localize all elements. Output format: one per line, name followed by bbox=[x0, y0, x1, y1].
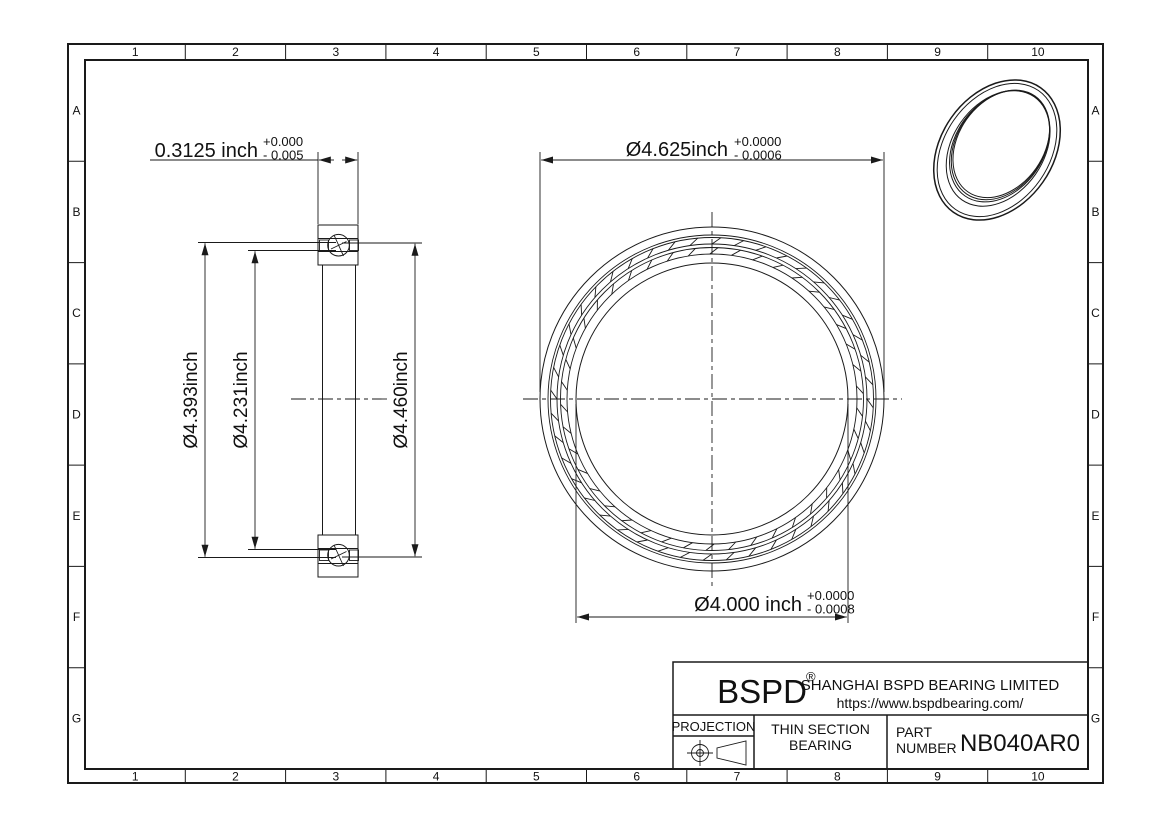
dim-4625-tol-minus: - 0.0006 bbox=[734, 148, 782, 163]
grid-row-label: B bbox=[72, 205, 80, 219]
dim-4460-value: Ø4.460inch bbox=[391, 351, 412, 448]
grid-row-label: E bbox=[1091, 509, 1099, 523]
grid-col-label: 7 bbox=[734, 45, 741, 59]
dim-4625-value: Ø4.625inch bbox=[626, 139, 728, 161]
grid-row-label: C bbox=[72, 306, 81, 320]
grid-col-label: 9 bbox=[934, 770, 941, 784]
frame-ticks-bottom bbox=[185, 769, 987, 783]
grid-col-label: 5 bbox=[533, 770, 540, 784]
front-view bbox=[523, 212, 902, 588]
grid-col-label: 2 bbox=[232, 45, 239, 59]
grid-col-label: 7 bbox=[734, 770, 741, 784]
grid-col-label: 9 bbox=[934, 45, 941, 59]
grid-col-label: 4 bbox=[433, 45, 440, 59]
company-website: https://www.bspdbearing.com/ bbox=[837, 695, 1024, 711]
iso-ring-outer-chamfer bbox=[912, 60, 1081, 239]
grid-col-label: 2 bbox=[232, 770, 239, 784]
iso-view-bearing-ring bbox=[908, 56, 1087, 245]
product-name-line1: THIN SECTION bbox=[771, 721, 870, 737]
dim-4393-extension-lines bbox=[198, 243, 336, 558]
grid-row-label: B bbox=[1091, 205, 1099, 219]
part-number-label-line1: PART bbox=[896, 724, 932, 740]
engineering-drawing-page: 1 2 3 4 5 6 7 8 9 10 1 2 3 4 5 6 7 8 9 1… bbox=[0, 0, 1170, 827]
grid-row-label: F bbox=[1092, 610, 1099, 624]
dim-width-tol-minus: - 0.005 bbox=[263, 148, 303, 163]
grid-col-label: 1 bbox=[132, 770, 139, 784]
iso-ring-outer-edge bbox=[908, 56, 1087, 245]
section-view bbox=[291, 225, 387, 577]
seal-top-left bbox=[320, 240, 329, 251]
grid-col-label: 1 bbox=[132, 45, 139, 59]
dim-4000-value: Ø4.000 inch bbox=[694, 594, 802, 616]
dim-width-extension-lines bbox=[318, 152, 358, 224]
brand-logo-text: BSPD bbox=[717, 673, 807, 710]
iso-ring-bore-edge-1 bbox=[929, 72, 1070, 222]
grid-col-label: 10 bbox=[1031, 770, 1045, 784]
grid-row-label: A bbox=[72, 104, 80, 118]
projection-crosshair bbox=[687, 740, 713, 766]
dim-4393-value: Ø4.393inch bbox=[181, 351, 202, 448]
frame-ticks-top bbox=[185, 44, 987, 60]
dim-4231-value: Ø4.231inch bbox=[231, 351, 252, 448]
grid-row-label: E bbox=[72, 509, 80, 523]
grid-col-label: 3 bbox=[332, 45, 339, 59]
grid-col-label: 4 bbox=[433, 770, 440, 784]
company-name: SHANGHAI BSPD BEARING LIMITED bbox=[801, 677, 1060, 694]
projection-label: PROJECTION bbox=[672, 719, 756, 734]
projection-symbol-icon bbox=[687, 740, 746, 766]
inner-ring-section-top bbox=[318, 252, 358, 266]
grid-col-label: 8 bbox=[834, 45, 841, 59]
inner-ring-section-bottom bbox=[318, 535, 358, 549]
part-number-label-line2: NUMBER bbox=[896, 740, 957, 756]
engineering-drawing: 1 2 3 4 5 6 7 8 9 10 1 2 3 4 5 6 7 8 9 1… bbox=[0, 0, 1170, 827]
grid-row-label: C bbox=[1091, 306, 1100, 320]
grid-row-label: G bbox=[1091, 711, 1100, 725]
dim-left-inner-4231: Ø4.231inch bbox=[231, 251, 336, 550]
dim-width-value: 0.3125 inch bbox=[155, 140, 258, 162]
grid-col-label: 8 bbox=[834, 770, 841, 784]
title-block: BSPD ® SHANGHAI BSPD BEARING LIMITED htt… bbox=[672, 662, 1088, 769]
dim-right-4460: Ø4.460inch bbox=[342, 243, 422, 557]
seal-bottom-left bbox=[320, 550, 329, 561]
grid-col-label: 10 bbox=[1031, 45, 1045, 59]
grid-col-label: 5 bbox=[533, 45, 540, 59]
projection-cone bbox=[717, 741, 746, 765]
grid-row-label: D bbox=[1091, 408, 1100, 422]
grid-row-label: A bbox=[1091, 104, 1099, 118]
grid-row-label: D bbox=[72, 408, 81, 422]
dim-4000-tol-minus: - 0.0008 bbox=[807, 602, 855, 617]
outer-ring-section-top bbox=[318, 225, 358, 239]
grid-col-label: 6 bbox=[633, 45, 640, 59]
dim-width: 0.3125 inch +0.000 - 0.005 bbox=[150, 134, 358, 224]
dim-bore-diameter: Ø4.000 inch +0.0000 - 0.0008 bbox=[576, 404, 855, 623]
product-name-line2: BEARING bbox=[789, 737, 852, 753]
grid-row-label: G bbox=[72, 711, 81, 725]
seal-bottom-right bbox=[350, 550, 359, 561]
part-number-value: NB040AR0 bbox=[960, 730, 1080, 757]
bore-surface bbox=[323, 265, 356, 535]
grid-col-label: 3 bbox=[332, 770, 339, 784]
section-outline-top bbox=[318, 225, 358, 265]
seal-top-right bbox=[350, 240, 359, 251]
dim-left-outer-4393: Ø4.393inch bbox=[181, 243, 336, 558]
grid-col-label: 6 bbox=[633, 770, 640, 784]
grid-row-label: F bbox=[73, 610, 80, 624]
